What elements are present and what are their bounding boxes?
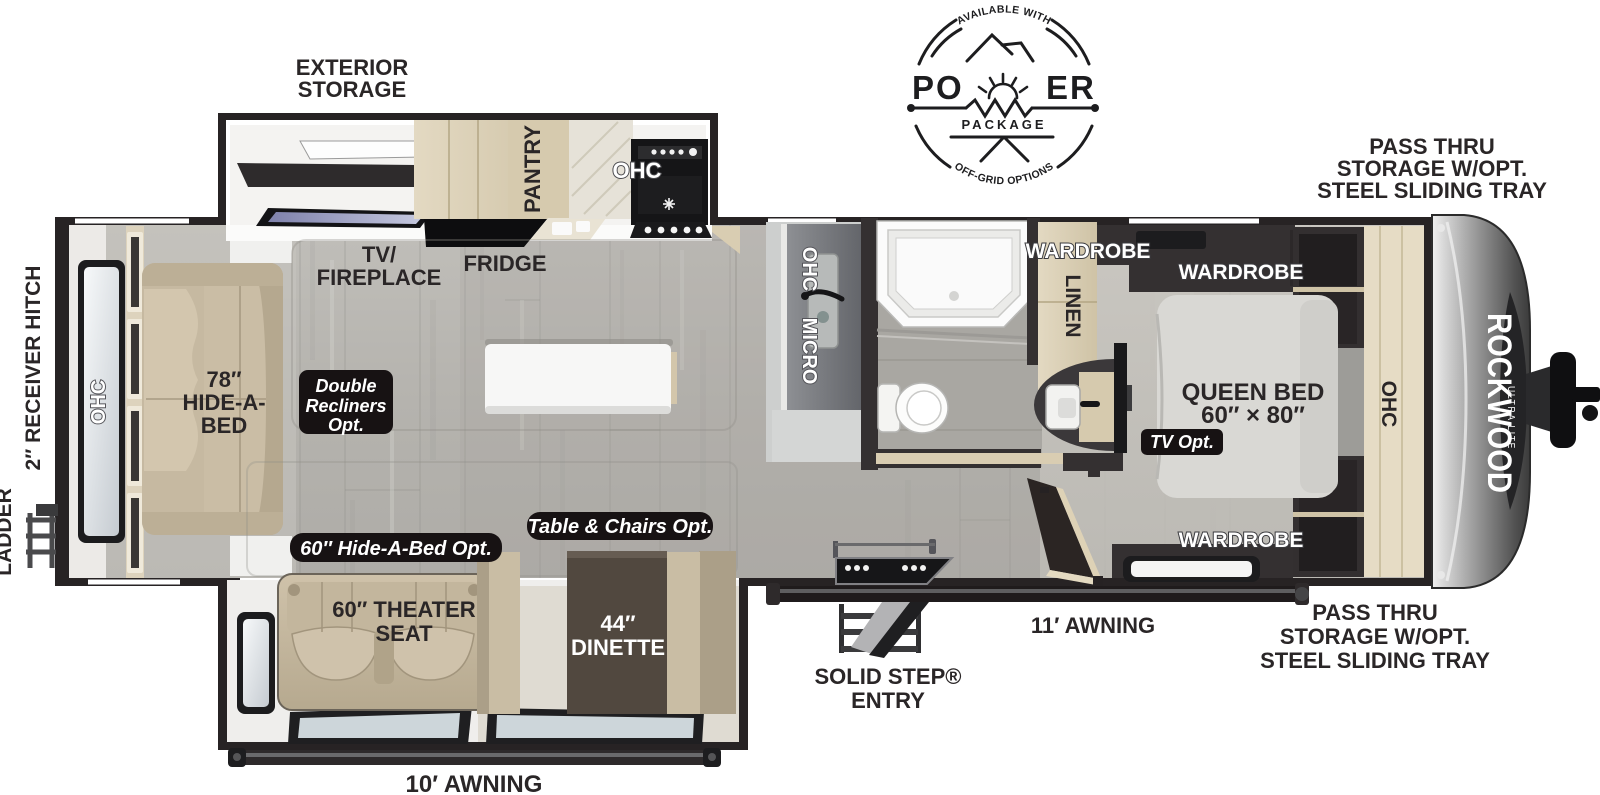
svg-text:BED: BED	[201, 413, 247, 438]
svg-text:HIDE-A-: HIDE-A-	[182, 390, 265, 415]
svg-text:ULTRA LITE: ULTRA LITE	[1505, 386, 1516, 450]
svg-text:60″ Hide-A-Bed Opt.: 60″ Hide-A-Bed Opt.	[300, 538, 492, 560]
svg-text:OHC: OHC	[613, 158, 662, 183]
svg-text:OHC: OHC	[88, 380, 110, 424]
svg-text:PO: PO	[912, 69, 964, 106]
svg-text:STEEL SLIDING TRAY: STEEL SLIDING TRAY	[1317, 178, 1547, 203]
svg-text:Recliners: Recliners	[305, 396, 386, 416]
svg-text:FRIDGE: FRIDGE	[463, 251, 546, 276]
svg-text:STEEL SLIDING TRAY: STEEL SLIDING TRAY	[1260, 648, 1490, 673]
svg-text:Opt.: Opt.	[328, 415, 364, 435]
svg-text:STORAGE: STORAGE	[298, 77, 406, 102]
svg-text:ENTRY: ENTRY	[851, 688, 925, 713]
svg-text:Table & Chairs Opt.: Table & Chairs Opt.	[528, 516, 713, 538]
svg-text:SOLID STEP®: SOLID STEP®	[814, 664, 961, 689]
svg-text:PASS THRU: PASS THRU	[1312, 600, 1438, 625]
svg-text:LINEN: LINEN	[1061, 275, 1084, 338]
svg-text:OHC: OHC	[1377, 381, 1400, 428]
svg-text:WARDROBE: WARDROBE	[1179, 529, 1304, 552]
svg-text:WARDROBE: WARDROBE	[1026, 240, 1151, 263]
svg-text:PANTRY: PANTRY	[520, 125, 545, 213]
svg-text:44″: 44″	[600, 611, 635, 636]
svg-text:TV/: TV/	[362, 242, 396, 267]
svg-text:LADDER: LADDER	[0, 488, 16, 576]
svg-text:60″ × 80″: 60″ × 80″	[1201, 402, 1305, 429]
svg-text:78″: 78″	[206, 367, 241, 392]
svg-text:OHC: OHC	[798, 247, 820, 291]
svg-text:WARDROBE: WARDROBE	[1179, 261, 1304, 284]
svg-text:Double: Double	[316, 376, 377, 396]
svg-text:DINETTE: DINETTE	[571, 635, 665, 660]
svg-text:ER: ER	[1046, 69, 1096, 106]
svg-text:MICRO: MICRO	[798, 318, 820, 385]
svg-text:STORAGE W/OPT.: STORAGE W/OPT.	[1280, 624, 1470, 649]
svg-text:FIREPLACE: FIREPLACE	[317, 265, 442, 290]
svg-text:11′ AWNING: 11′ AWNING	[1031, 613, 1155, 638]
svg-text:2″ RECEIVER HITCH: 2″ RECEIVER HITCH	[22, 266, 45, 471]
svg-text:TV Opt.: TV Opt.	[1150, 432, 1214, 452]
svg-text:10′ AWNING: 10′ AWNING	[406, 771, 543, 795]
svg-text:60″ THEATER: 60″ THEATER	[332, 597, 475, 622]
svg-text:PACKAGE: PACKAGE	[961, 117, 1046, 132]
svg-text:SEAT: SEAT	[375, 621, 433, 646]
